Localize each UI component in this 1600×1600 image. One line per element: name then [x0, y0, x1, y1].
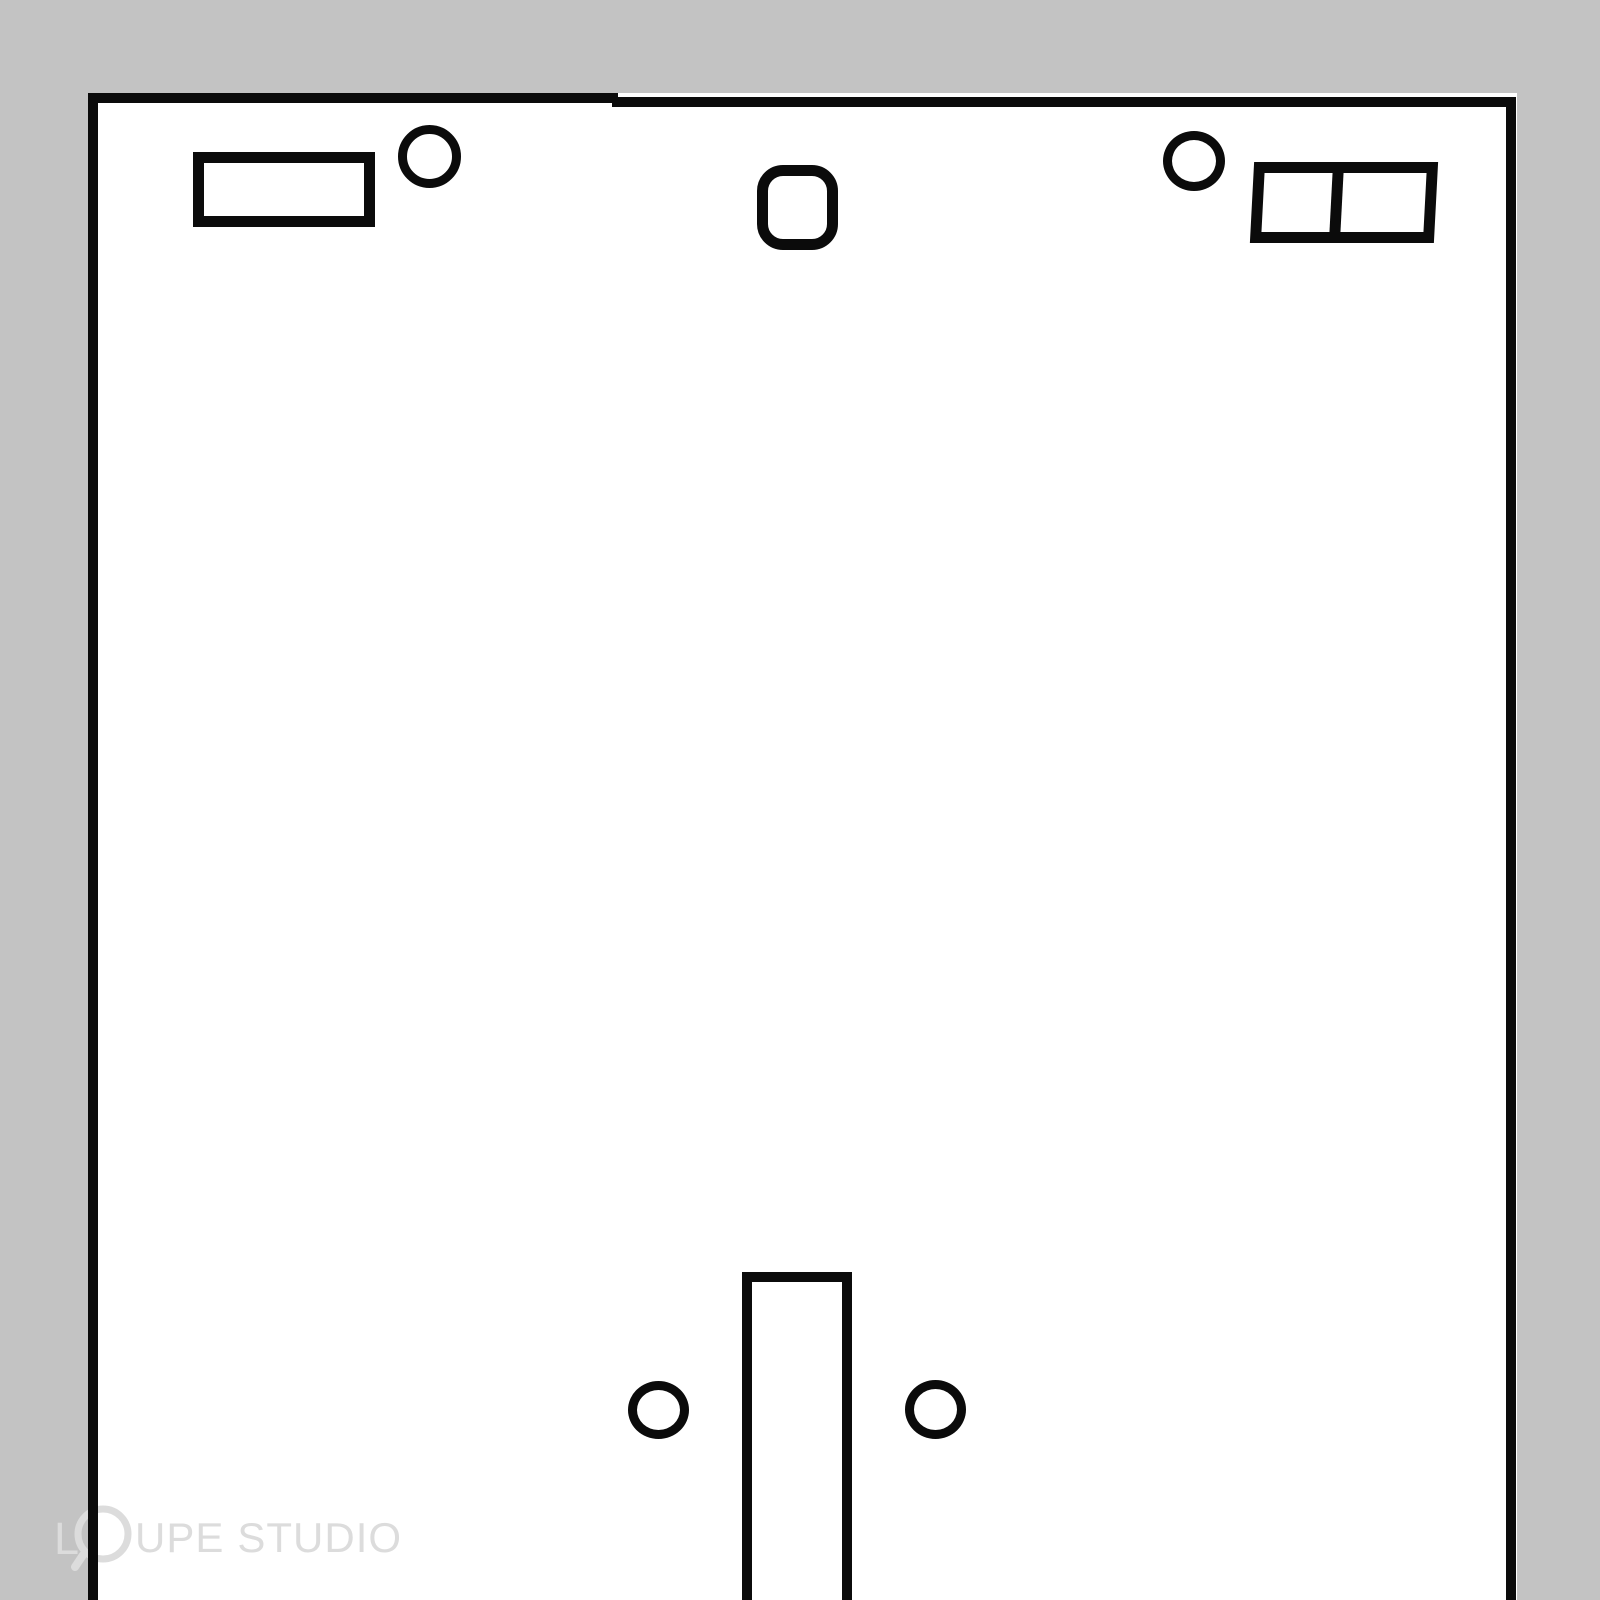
- diagram-canvas: L UPE STUDIO: [0, 0, 1600, 1600]
- watermark: L UPE STUDIO: [54, 1504, 402, 1572]
- panel-surface: [88, 93, 1517, 1600]
- watermark-text-upe: UPE: [135, 1517, 224, 1559]
- loupe-magnifier-icon: [71, 1503, 133, 1573]
- watermark-text-studio: STUDIO: [237, 1517, 402, 1559]
